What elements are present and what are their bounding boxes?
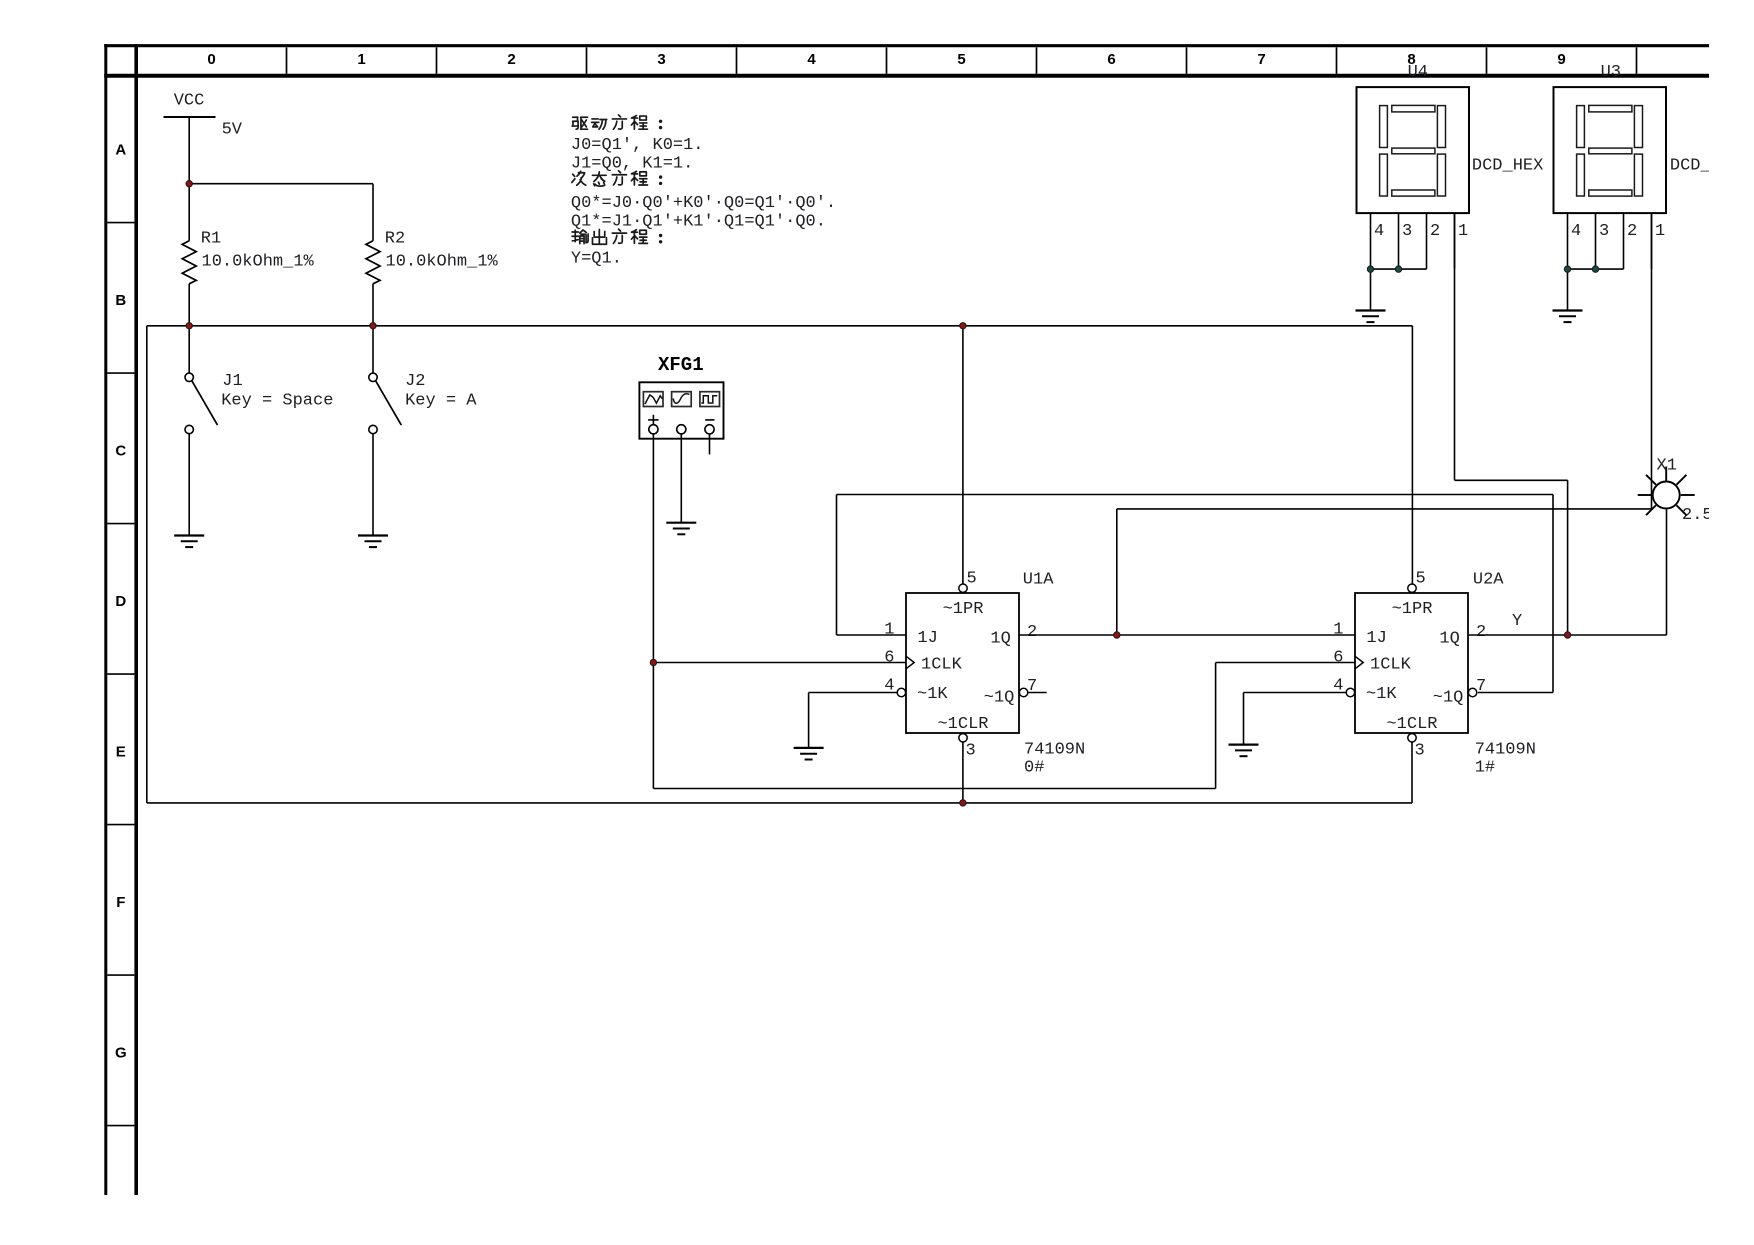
svg-text:Key = A: Key = A [405, 392, 477, 411]
svg-text:9: 9 [1557, 51, 1565, 68]
svg-text:5: 5 [957, 51, 965, 68]
svg-text:7: 7 [1257, 51, 1265, 68]
svg-text:J2: J2 [405, 372, 425, 391]
svg-text:X1: X1 [1657, 456, 1677, 475]
svg-text:74109N: 74109N [1475, 741, 1536, 760]
svg-text:C: C [115, 443, 126, 460]
svg-text:2: 2 [507, 51, 515, 68]
svg-text:G: G [115, 1045, 127, 1062]
svg-text:Key = Space: Key = Space [221, 392, 333, 411]
svg-text:U2A: U2A [1473, 571, 1504, 590]
svg-text:XFG1: XFG1 [658, 354, 704, 376]
svg-text:E: E [116, 744, 126, 761]
svg-text:6: 6 [1107, 51, 1115, 68]
svg-text:10.0kOhm_1%: 10.0kOhm_1% [386, 253, 499, 272]
svg-text:DCD_HEX: DCD_HEX [1472, 157, 1543, 176]
svg-text:F: F [116, 894, 125, 911]
svg-text:1#: 1# [1475, 759, 1495, 778]
svg-text:74109N: 74109N [1024, 741, 1085, 760]
svg-text:A: A [115, 142, 126, 159]
svg-text:VCC: VCC [174, 92, 205, 111]
svg-text:U4: U4 [1408, 63, 1428, 82]
svg-text:10.0kOhm_1%: 10.0kOhm_1% [202, 253, 315, 272]
svg-text:5V: 5V [222, 121, 243, 140]
svg-text:0: 0 [207, 51, 215, 68]
svg-text:Y=Q1.: Y=Q1. [571, 249, 622, 268]
svg-text:U1A: U1A [1023, 571, 1054, 590]
svg-text:D: D [115, 593, 126, 610]
svg-text:3: 3 [657, 51, 665, 68]
svg-text:R2: R2 [385, 229, 405, 248]
svg-text:U3: U3 [1601, 63, 1621, 82]
svg-text:R1: R1 [201, 229, 221, 248]
svg-text:Q1*=J1·Q1'+K1'·Q1=Q1'·Q0.: Q1*=J1·Q1'+K1'·Q1=Q1'·Q0. [571, 213, 826, 232]
svg-text:2.5: 2.5 [1682, 506, 1713, 525]
svg-text:Y: Y [1512, 612, 1522, 631]
svg-text:4: 4 [807, 51, 816, 68]
svg-text:Q0*=J0·Q0'+K0'·Q0=Q1'·Q0'.: Q0*=J0·Q0'+K0'·Q0=Q1'·Q0'. [571, 194, 836, 213]
svg-text:0#: 0# [1024, 759, 1044, 778]
svg-text:J0=Q1', K0=1.: J0=Q1', K0=1. [571, 136, 704, 155]
svg-text:J1: J1 [222, 372, 242, 391]
svg-text:J1=Q0, K1=1.: J1=Q0, K1=1. [571, 154, 693, 173]
svg-text:1: 1 [357, 51, 365, 68]
svg-text:B: B [115, 292, 126, 309]
